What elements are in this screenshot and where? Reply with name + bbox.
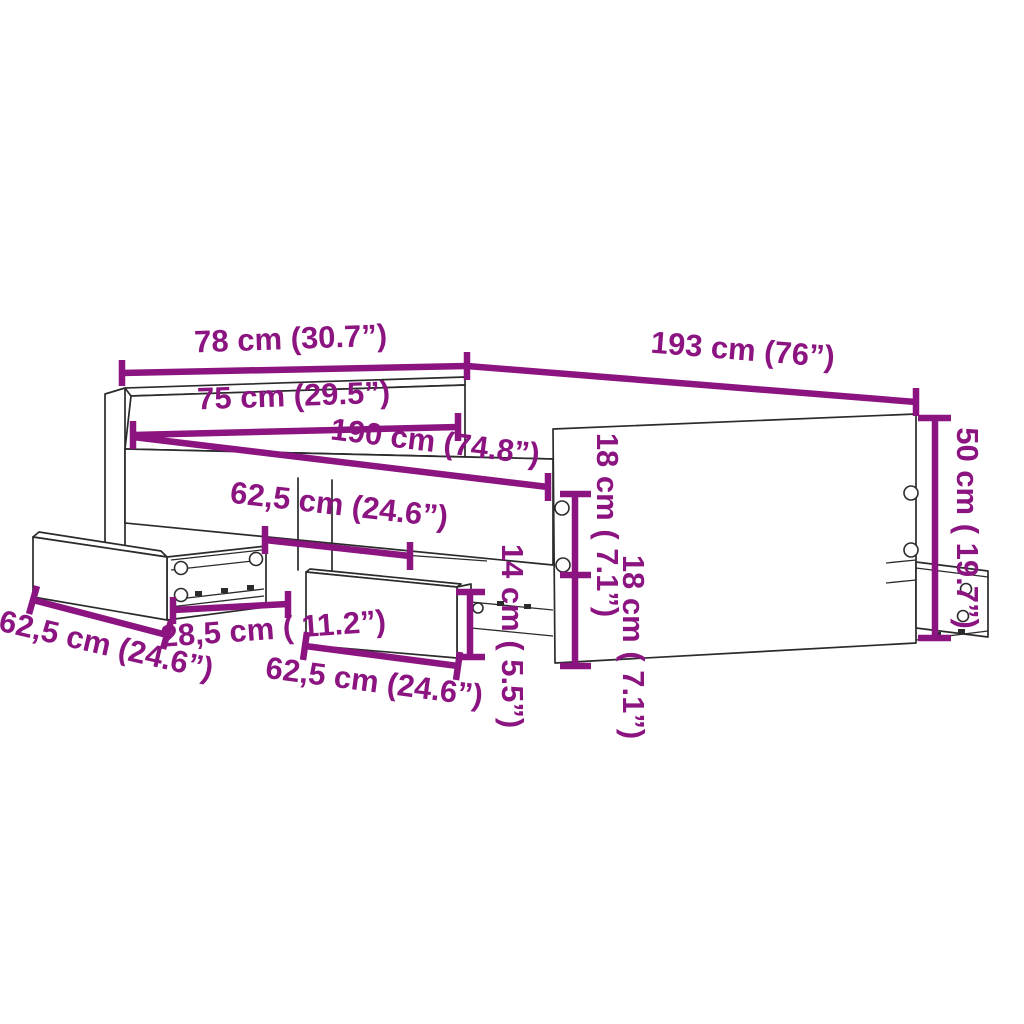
dim-overall-length: 193 cm (76”): [467, 325, 916, 416]
left-drawer-hole-3: [250, 553, 263, 566]
panel-hole-top-right: [904, 486, 918, 500]
dim-inner-width-label: 75 cm (29.5”): [197, 375, 391, 417]
diagram-canvas: 78 cm (30.7”) 193 cm (76”) 75 cm (29.5”)…: [0, 0, 1024, 1024]
panel-hole-bottom-left: [556, 558, 570, 572]
left-drawer-rail-clip-1: [195, 591, 202, 596]
dim-panel-hole-lower-label: 18 cm ( 7.1”): [616, 555, 651, 739]
dim-overall-length-label: 193 cm (76”): [650, 325, 837, 375]
right-drawer-rail-clip-2: [958, 629, 965, 634]
headboard-left-side: [105, 388, 125, 547]
left-drawer-rail-clip-3: [247, 585, 254, 590]
left-drawer-hole-1: [175, 562, 188, 575]
dim-overall-width: 78 cm (30.7”): [122, 318, 467, 386]
panel-hole-top-left: [555, 501, 569, 515]
bed-frame-dimension-diagram: 78 cm (30.7”) 193 cm (76”) 75 cm (29.5”)…: [0, 0, 1024, 1024]
panel-hole-bottom-right: [904, 543, 918, 557]
dim-side-panel-height-label: 50 cm ( 19.7”): [950, 427, 985, 629]
cavity2-hole: [473, 603, 483, 613]
left-drawer-hole-2: [175, 589, 188, 602]
dim-drawer2-width-bottom-label: 62,5 cm (24.6”): [264, 650, 486, 713]
left-drawer-rail-clip-2: [221, 588, 228, 593]
dim-overall-width-label: 78 cm (30.7”): [194, 318, 388, 360]
dim-drawer-height-label: 14 cm ( 5.5”): [495, 544, 530, 728]
